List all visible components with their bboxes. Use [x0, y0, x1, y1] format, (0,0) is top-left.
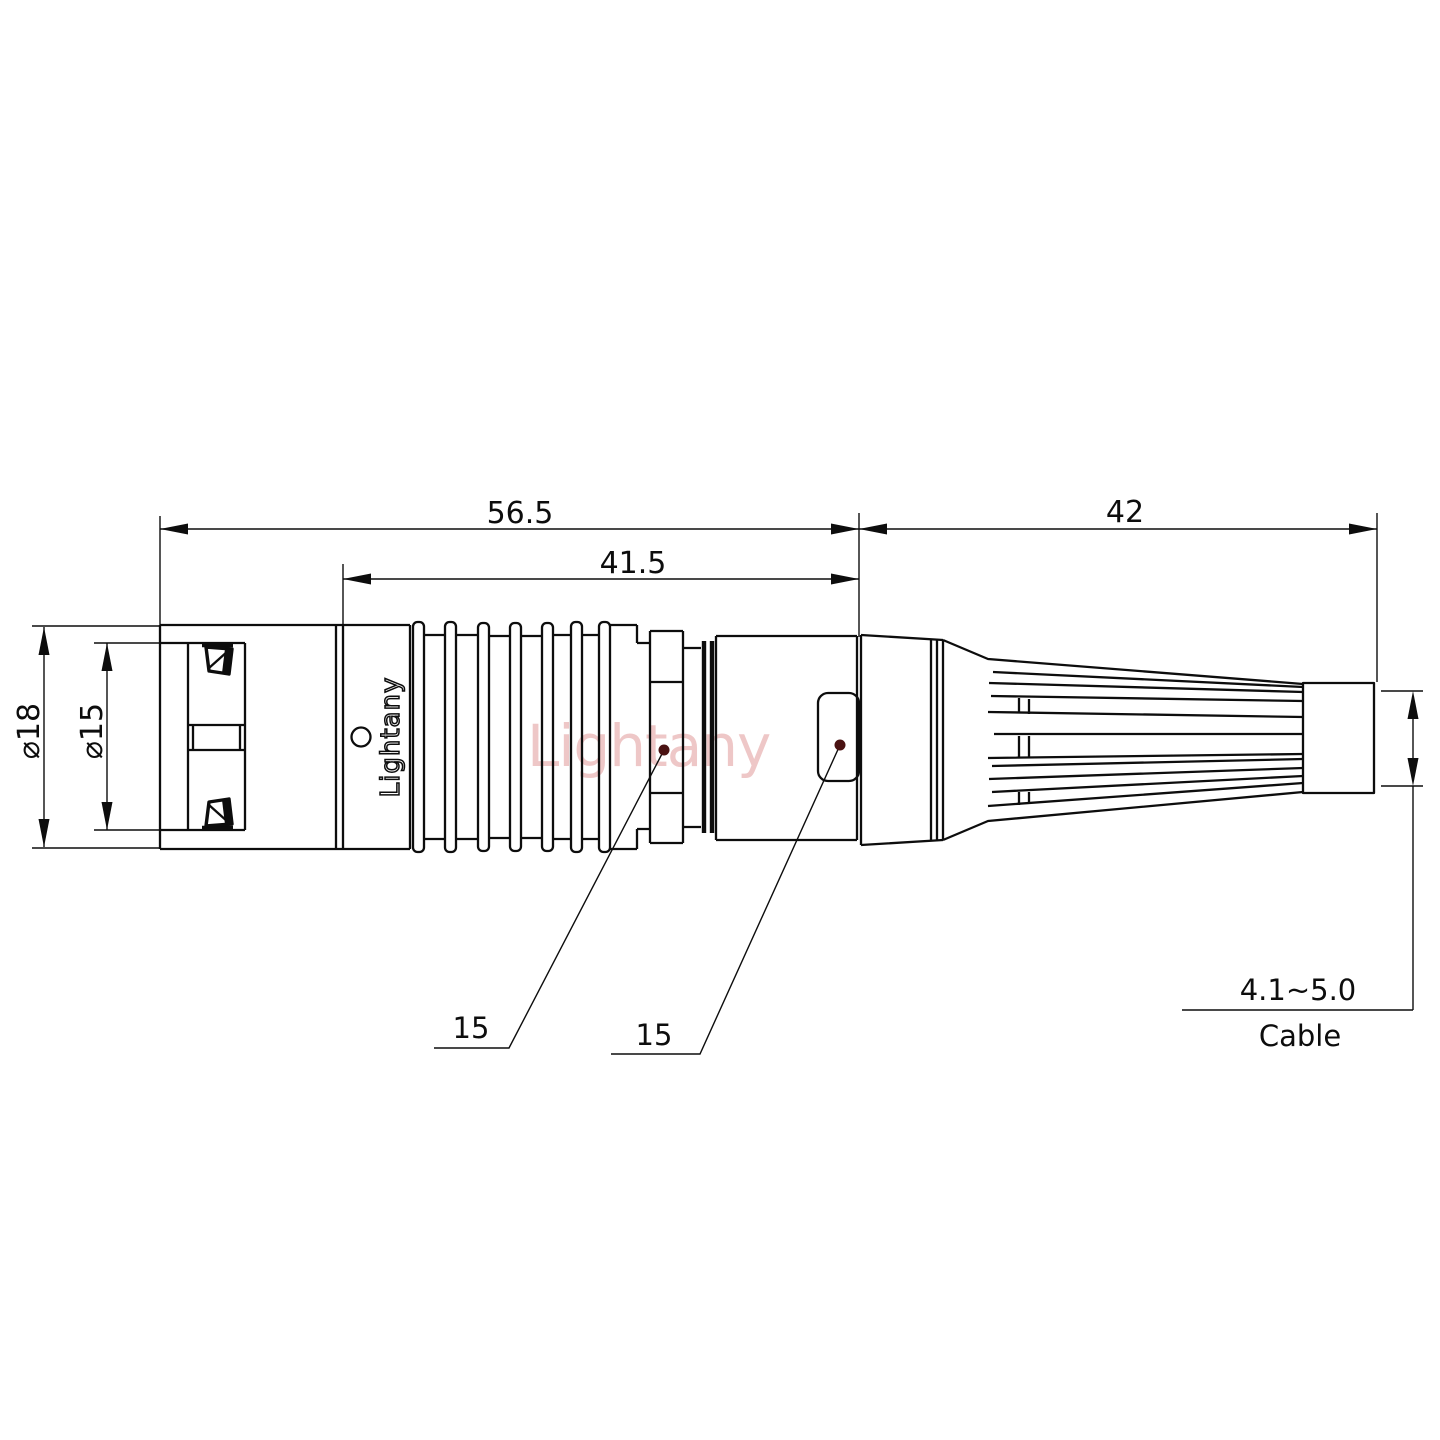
arrowhead: [160, 524, 188, 535]
arrowhead: [1408, 691, 1419, 719]
grip-ridge: [413, 622, 424, 852]
callout-text-backshell: 15: [636, 1018, 673, 1052]
grip-surface-top: [424, 635, 599, 636]
backshell-window: [818, 693, 859, 781]
cable-range-text: 4.1~5.0: [1240, 973, 1357, 1007]
boot-fin-edges-bottom: [988, 754, 1303, 806]
dimension-lines: [32, 513, 1423, 1054]
arrowhead: [39, 627, 50, 655]
cable-end-cap: [1303, 683, 1374, 793]
arrowhead: [859, 524, 887, 535]
dim-text-overall-length: 56.5: [487, 496, 554, 531]
leader-dot-nut: [659, 745, 670, 756]
grip-ridge: [510, 623, 521, 851]
arrowhead: [831, 524, 859, 535]
body-logo-text: Lightany: [376, 677, 406, 798]
guide-key-bottom: [202, 799, 233, 828]
bend-relief-boot: [861, 635, 1374, 845]
dim-text-grip-length: 41.5: [600, 546, 667, 581]
front-slot: [188, 725, 245, 750]
logo-panel: Lightany: [352, 625, 411, 849]
dim-text-front-diameter: ⌀15: [75, 703, 110, 759]
leader-line-nut: [434, 750, 664, 1048]
cable-label-text: Cable: [1259, 1019, 1341, 1053]
leader-dot-backshell: [835, 740, 846, 751]
boot-core-posts: [1019, 698, 1029, 805]
arrowhead: [102, 802, 113, 830]
dim-text-outer-diameter: ⌀18: [12, 703, 47, 759]
leader-line-backshell: [611, 745, 840, 1054]
arrowhead: [1408, 758, 1419, 786]
callout-text-nut: 15: [453, 1011, 490, 1045]
arrowhead: [831, 574, 859, 585]
arrowhead: [102, 643, 113, 671]
release-mark-circle: [352, 728, 371, 747]
guide-key-top: [202, 645, 233, 674]
collar-ridges: [931, 640, 943, 840]
dim-text-boot-length: 42: [1106, 495, 1144, 530]
grip-ridge: [445, 622, 456, 852]
grip-surface-bottom: [424, 838, 599, 839]
arrowhead: [1349, 524, 1377, 535]
connector-technical-drawing: Lightany: [0, 0, 1440, 1440]
technical-drawing-page: Lightany: [0, 0, 1440, 1440]
grip-ridge: [478, 623, 489, 851]
arrowhead: [343, 574, 371, 585]
front-shell: [160, 625, 410, 849]
boot-outer-bottom: [943, 792, 1303, 840]
watermark-text: Lightany: [527, 712, 770, 780]
arrowhead: [39, 819, 50, 847]
